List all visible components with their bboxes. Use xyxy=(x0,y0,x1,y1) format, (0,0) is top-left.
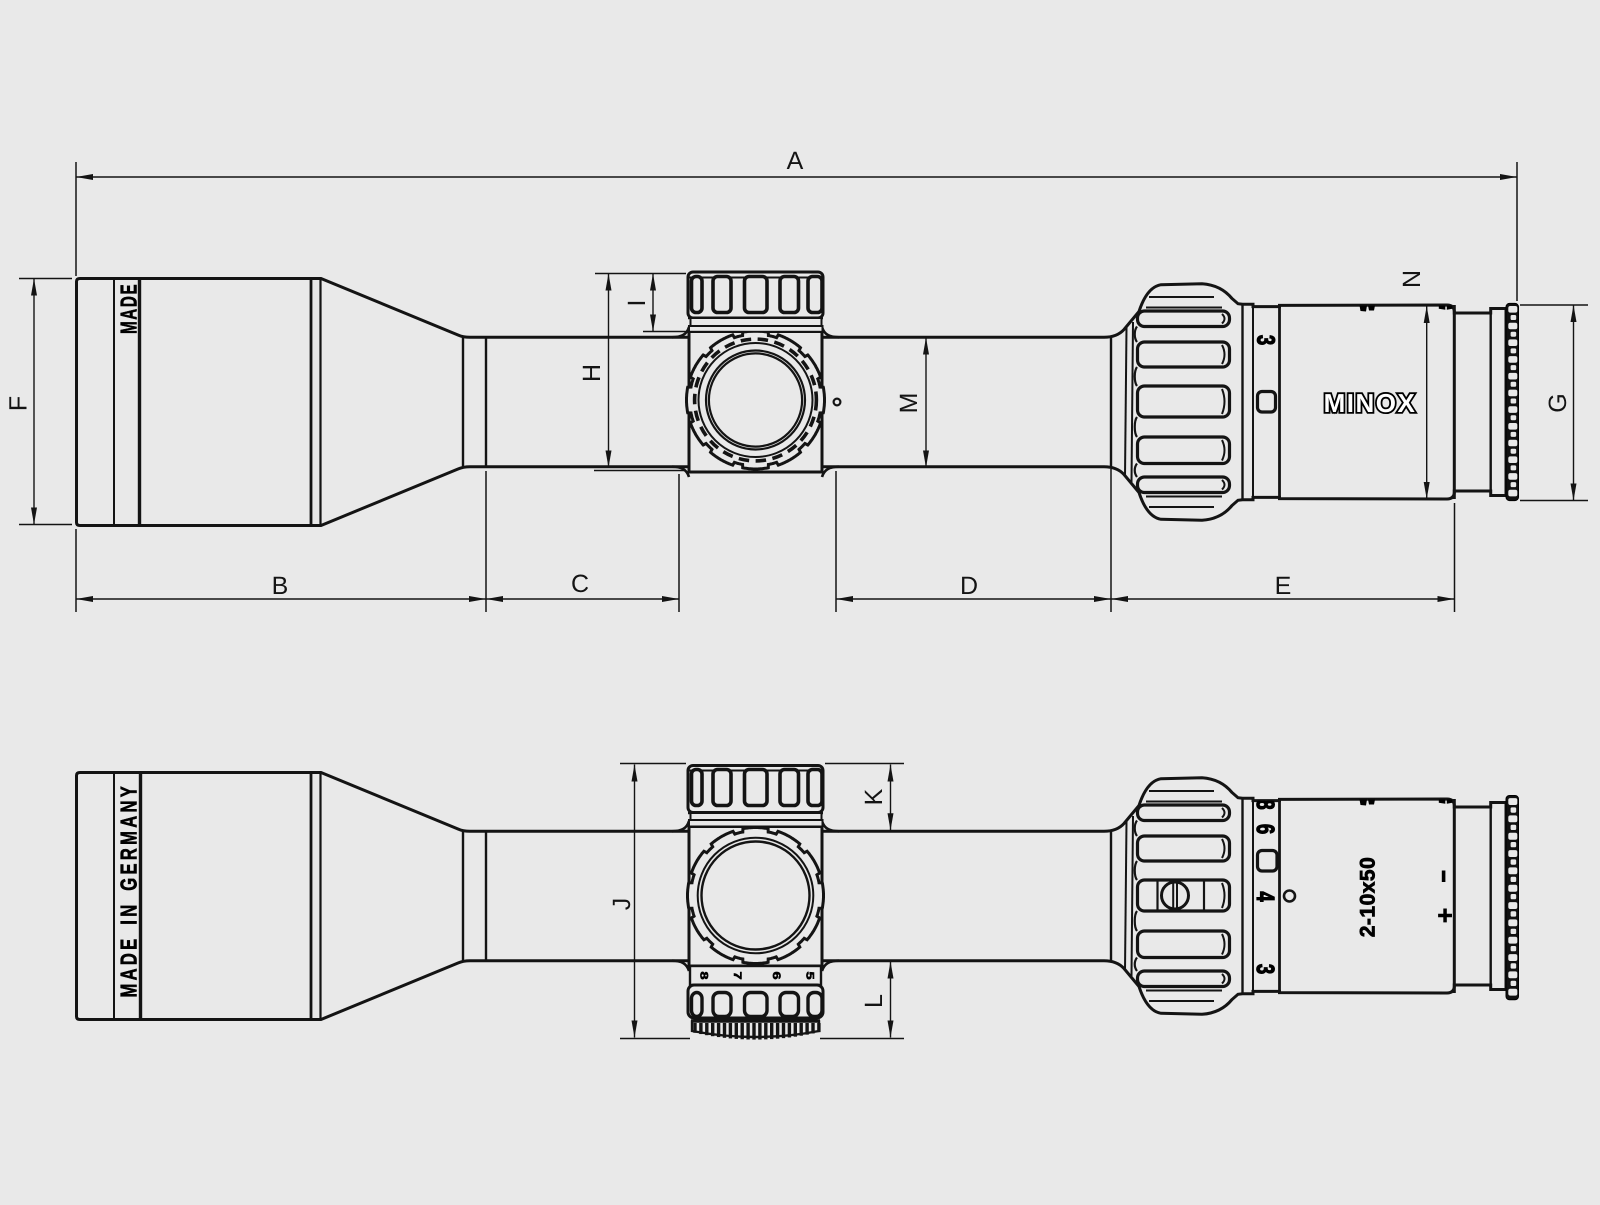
svg-text:8: 8 xyxy=(698,971,710,979)
svg-text:6: 6 xyxy=(770,971,782,979)
svg-text:7: 7 xyxy=(731,971,743,979)
svg-text:E: E xyxy=(1275,572,1292,600)
svg-text:5: 5 xyxy=(804,971,816,979)
svg-text:J: J xyxy=(608,898,636,911)
svg-text:N: N xyxy=(1398,270,1426,288)
svg-text:M: M xyxy=(895,393,923,414)
svg-text:3: 3 xyxy=(1252,335,1280,345)
svg-text:3: 3 xyxy=(1252,964,1280,974)
svg-text:6: 6 xyxy=(1252,824,1280,834)
svg-text:B: B xyxy=(272,572,289,600)
svg-text:C: C xyxy=(571,570,589,598)
svg-text:H: H xyxy=(578,364,606,382)
svg-text:I: I xyxy=(623,300,651,307)
svg-text:4: 4 xyxy=(1252,891,1280,902)
svg-text:G: G xyxy=(1544,393,1572,412)
svg-text:2-10x50: 2-10x50 xyxy=(1357,857,1380,938)
svg-text:MINOX: MINOX xyxy=(1324,388,1417,418)
svg-text:F: F xyxy=(5,396,33,411)
svg-text:A: A xyxy=(787,147,804,175)
svg-text:D: D xyxy=(960,572,978,600)
svg-text:K: K xyxy=(860,788,888,805)
svg-text:MADE IN GERMANY: MADE IN GERMANY xyxy=(116,783,142,998)
svg-text:L: L xyxy=(860,994,888,1008)
svg-text:8: 8 xyxy=(1252,799,1280,809)
